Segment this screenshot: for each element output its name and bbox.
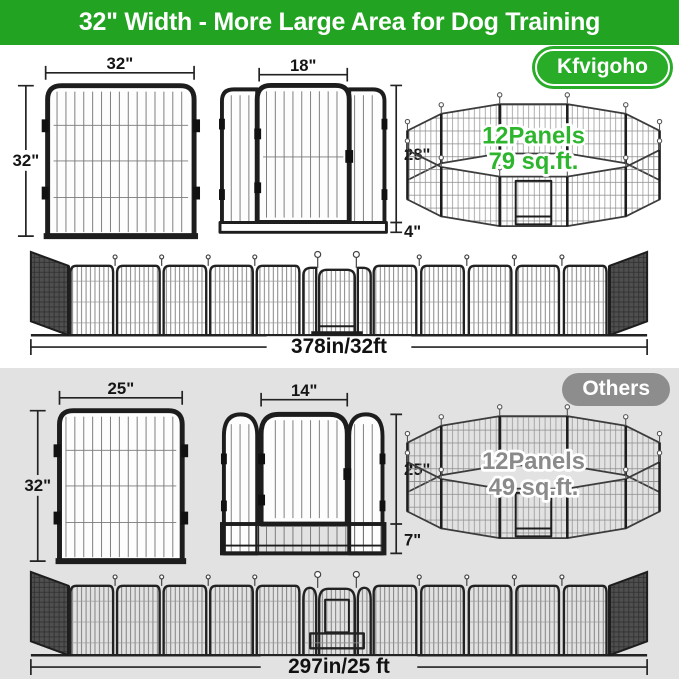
others-panel-diagram: 25" 32" — [8, 383, 206, 571]
brand-pen-illustration: 12Panels 79 sq.ft. — [390, 86, 677, 259]
door-width-label: 14" — [291, 381, 317, 400]
panel-mesh — [65, 417, 176, 558]
pen-panel-count: 12Panels — [482, 123, 585, 149]
width-dimension: 25" — [60, 379, 183, 405]
door-width-label: 18" — [290, 56, 316, 75]
door-width-dimension: 18" — [259, 56, 347, 82]
others-pen-illustration: 12Panels 49 sq.ft. — [390, 398, 677, 571]
end-panel-left — [31, 252, 69, 335]
door-width-dimension: 14" — [261, 381, 347, 407]
panel-height-label: 32" — [13, 151, 40, 170]
door-hinge — [254, 129, 261, 140]
door-latch — [343, 468, 351, 480]
brand-panel-diagram: 32" 32" — [8, 58, 206, 246]
hinge-tab — [193, 187, 200, 200]
header-banner: 32" Width - More Large Area for Dog Trai… — [0, 0, 679, 45]
panel-mesh — [54, 92, 189, 233]
pen-area: 49 sq.ft. — [489, 475, 579, 501]
brand-badge: Kfvigoho — [535, 49, 670, 86]
end-panel-right — [609, 252, 647, 335]
junction-pins — [113, 575, 564, 586]
brand-row-diagram: 378in/32ft — [16, 250, 662, 357]
door-hinge — [258, 454, 265, 465]
row-length-label: 378in/32ft — [291, 335, 387, 358]
bottom-tray — [222, 524, 385, 553]
hinge-tab — [193, 119, 200, 132]
others-row-diagram: 297in/25 ft — [16, 570, 662, 677]
hinge-tab — [42, 187, 49, 200]
end-panel-right — [609, 572, 647, 655]
row-length-dimension: 378in/32ft — [31, 335, 647, 358]
row-length-dimension: 297in/25 ft — [31, 655, 647, 678]
row-door — [303, 571, 370, 655]
door-hinge — [254, 182, 261, 193]
height-dimension: 32" — [10, 86, 42, 236]
row-door — [303, 251, 370, 335]
panel-height-label: 32" — [24, 476, 51, 495]
header-title: 32" Width - More Large Area for Dog Trai… — [79, 8, 600, 37]
product-comparison-image: 32" Width - More Large Area for Dog Trai… — [0, 0, 679, 679]
width-dimension: 32" — [46, 54, 194, 80]
bottom-bar — [220, 223, 386, 233]
end-panel-left — [31, 572, 69, 655]
door-latch — [345, 150, 353, 163]
pen-panel-count: 12Panels — [482, 449, 585, 475]
hinge-tab — [42, 119, 49, 132]
door-hinge — [258, 495, 265, 506]
height-dimension: 32" — [22, 411, 54, 561]
junction-pins — [113, 255, 564, 266]
row-length-label: 297in/25 ft — [288, 655, 390, 678]
panel-width-label: 25" — [108, 379, 135, 398]
pen-area: 79 sq.ft. — [489, 149, 579, 175]
panel-width-label: 32" — [107, 54, 134, 73]
